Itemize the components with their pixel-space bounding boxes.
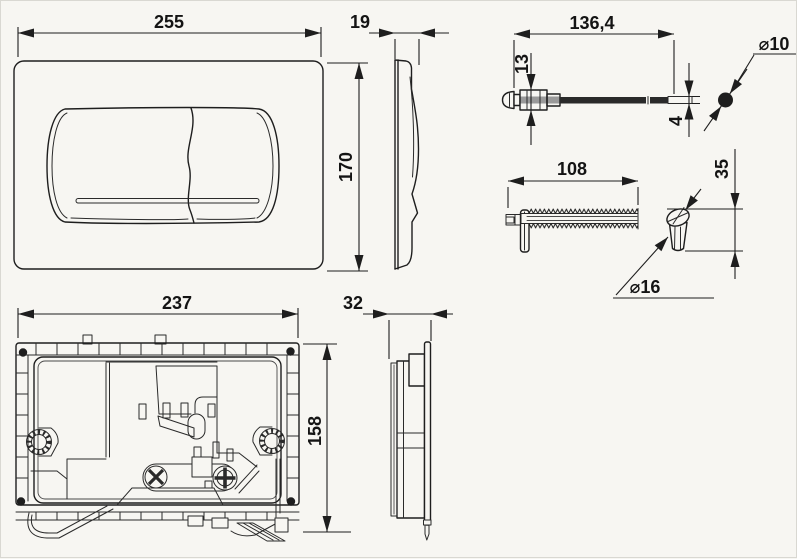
- drawing-canvas: 255 170 19: [0, 0, 797, 558]
- ball-end: [718, 93, 733, 108]
- left-adjuster-knob: [27, 428, 59, 456]
- dim-rod-tip-label: 4: [666, 116, 686, 126]
- dim-plate-depth: 19: [350, 12, 449, 65]
- mounting-frame-side-view: [391, 342, 431, 540]
- mounting-frame-view: [16, 335, 299, 541]
- dim-rod-length-label: 136,4: [569, 13, 614, 33]
- dim-plate-depth-label: 19: [350, 12, 370, 32]
- dim-plate-width-label: 255: [154, 12, 184, 32]
- dim-rod-head-label: 13: [512, 54, 532, 74]
- dim-plate-height-label: 170: [336, 152, 356, 182]
- dim-frame-depth: 32: [343, 293, 453, 359]
- corner-screw: [286, 347, 294, 355]
- dim-rack-length-label: 108: [557, 159, 587, 179]
- dim-frame-width: 237: [18, 293, 298, 338]
- corner-screw: [17, 497, 25, 505]
- dim-frame-height-label: 158: [305, 416, 325, 446]
- dim-frame-depth-label: 32: [343, 293, 363, 313]
- right-adjuster-knob: [253, 427, 285, 455]
- flush-plate-front-view: [14, 61, 323, 269]
- dim-rod-ball-label: ⌀10: [759, 34, 790, 54]
- dim-frame-height: 158: [303, 344, 351, 532]
- button-divider: [188, 108, 194, 223]
- technical-drawing: 255 170 19: [1, 1, 797, 559]
- corner-screw: [19, 348, 27, 356]
- clips: [139, 403, 233, 461]
- dim-plate-height: 170: [327, 63, 368, 271]
- dim-rod-length: 136,4: [514, 13, 674, 94]
- dim-rod-ball: ⌀10: [704, 34, 796, 131]
- threaded-rod-view: [506, 209, 638, 253]
- dim-cone-dia-label: ⌀16: [630, 277, 661, 297]
- cam-lever: [143, 457, 237, 491]
- dim-frame-width-label: 237: [162, 293, 192, 313]
- dim-rack-length: 108: [508, 159, 638, 208]
- flush-slot: [76, 199, 259, 204]
- flush-plate-side-view: [395, 60, 419, 269]
- dim-cone-dia: ⌀16: [613, 237, 714, 298]
- corner-screw: [287, 497, 295, 505]
- dim-cone-height-label: 35: [712, 159, 732, 179]
- button-cluster: [47, 108, 279, 224]
- dim-plate-width: 255: [18, 12, 321, 57]
- cone-plug-view: [664, 189, 701, 251]
